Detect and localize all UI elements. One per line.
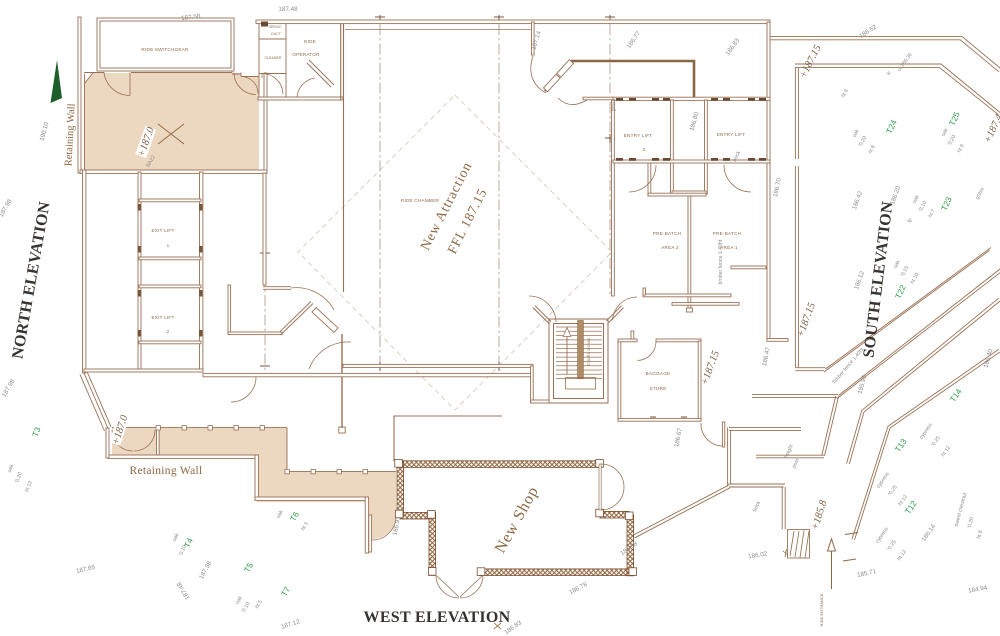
svg-text:Retaining Wall: Retaining Wall	[129, 465, 202, 477]
svg-text:RIDE SWITCHGEAR: RIDE SWITCHGEAR	[141, 47, 189, 52]
svg-text:187.48: 187.48	[278, 6, 298, 13]
svg-text:grass: grass	[611, 98, 617, 111]
svg-text:RIDE CHAMBER: RIDE CHAMBER	[401, 198, 440, 203]
svg-text:AREA 2: AREA 2	[661, 245, 679, 250]
svg-text:CLEANER: CLEANER	[265, 56, 282, 60]
svg-text:OPERATOR: OPERATOR	[292, 52, 320, 57]
svg-text:EXIT LIFT: EXIT LIFT	[151, 228, 174, 233]
svg-text:PRE-BATCH: PRE-BATCH	[653, 231, 681, 236]
svg-text:SERVIC: SERVIC	[269, 25, 282, 29]
svg-text:2: 2	[643, 147, 646, 152]
svg-text:WEST ELEVATION: WEST ELEVATION	[364, 609, 511, 626]
svg-text:RIDE ENTRANCE: RIDE ENTRANCE	[820, 593, 824, 626]
svg-text:EXIT LIFT: EXIT LIFT	[151, 315, 174, 320]
svg-text:timber fence 1.40ht: timber fence 1.40ht	[718, 239, 724, 284]
svg-text:PRE-BATCH: PRE-BATCH	[713, 231, 741, 236]
svg-text:ENTRY LIFT: ENTRY LIFT	[624, 133, 653, 138]
svg-text:STORE: STORE	[650, 386, 667, 391]
svg-text:1: 1	[167, 243, 170, 248]
svg-text:RIDE: RIDE	[304, 39, 316, 44]
svg-text:ENTRY LIFT: ENTRY LIFT	[717, 132, 746, 137]
svg-text:BAGGAGE: BAGGAGE	[646, 371, 671, 376]
svg-text:DUCT: DUCT	[271, 32, 282, 36]
svg-text:STAIRS DOWN: STAIRS DOWN	[587, 338, 591, 366]
svg-text:2: 2	[167, 329, 170, 334]
